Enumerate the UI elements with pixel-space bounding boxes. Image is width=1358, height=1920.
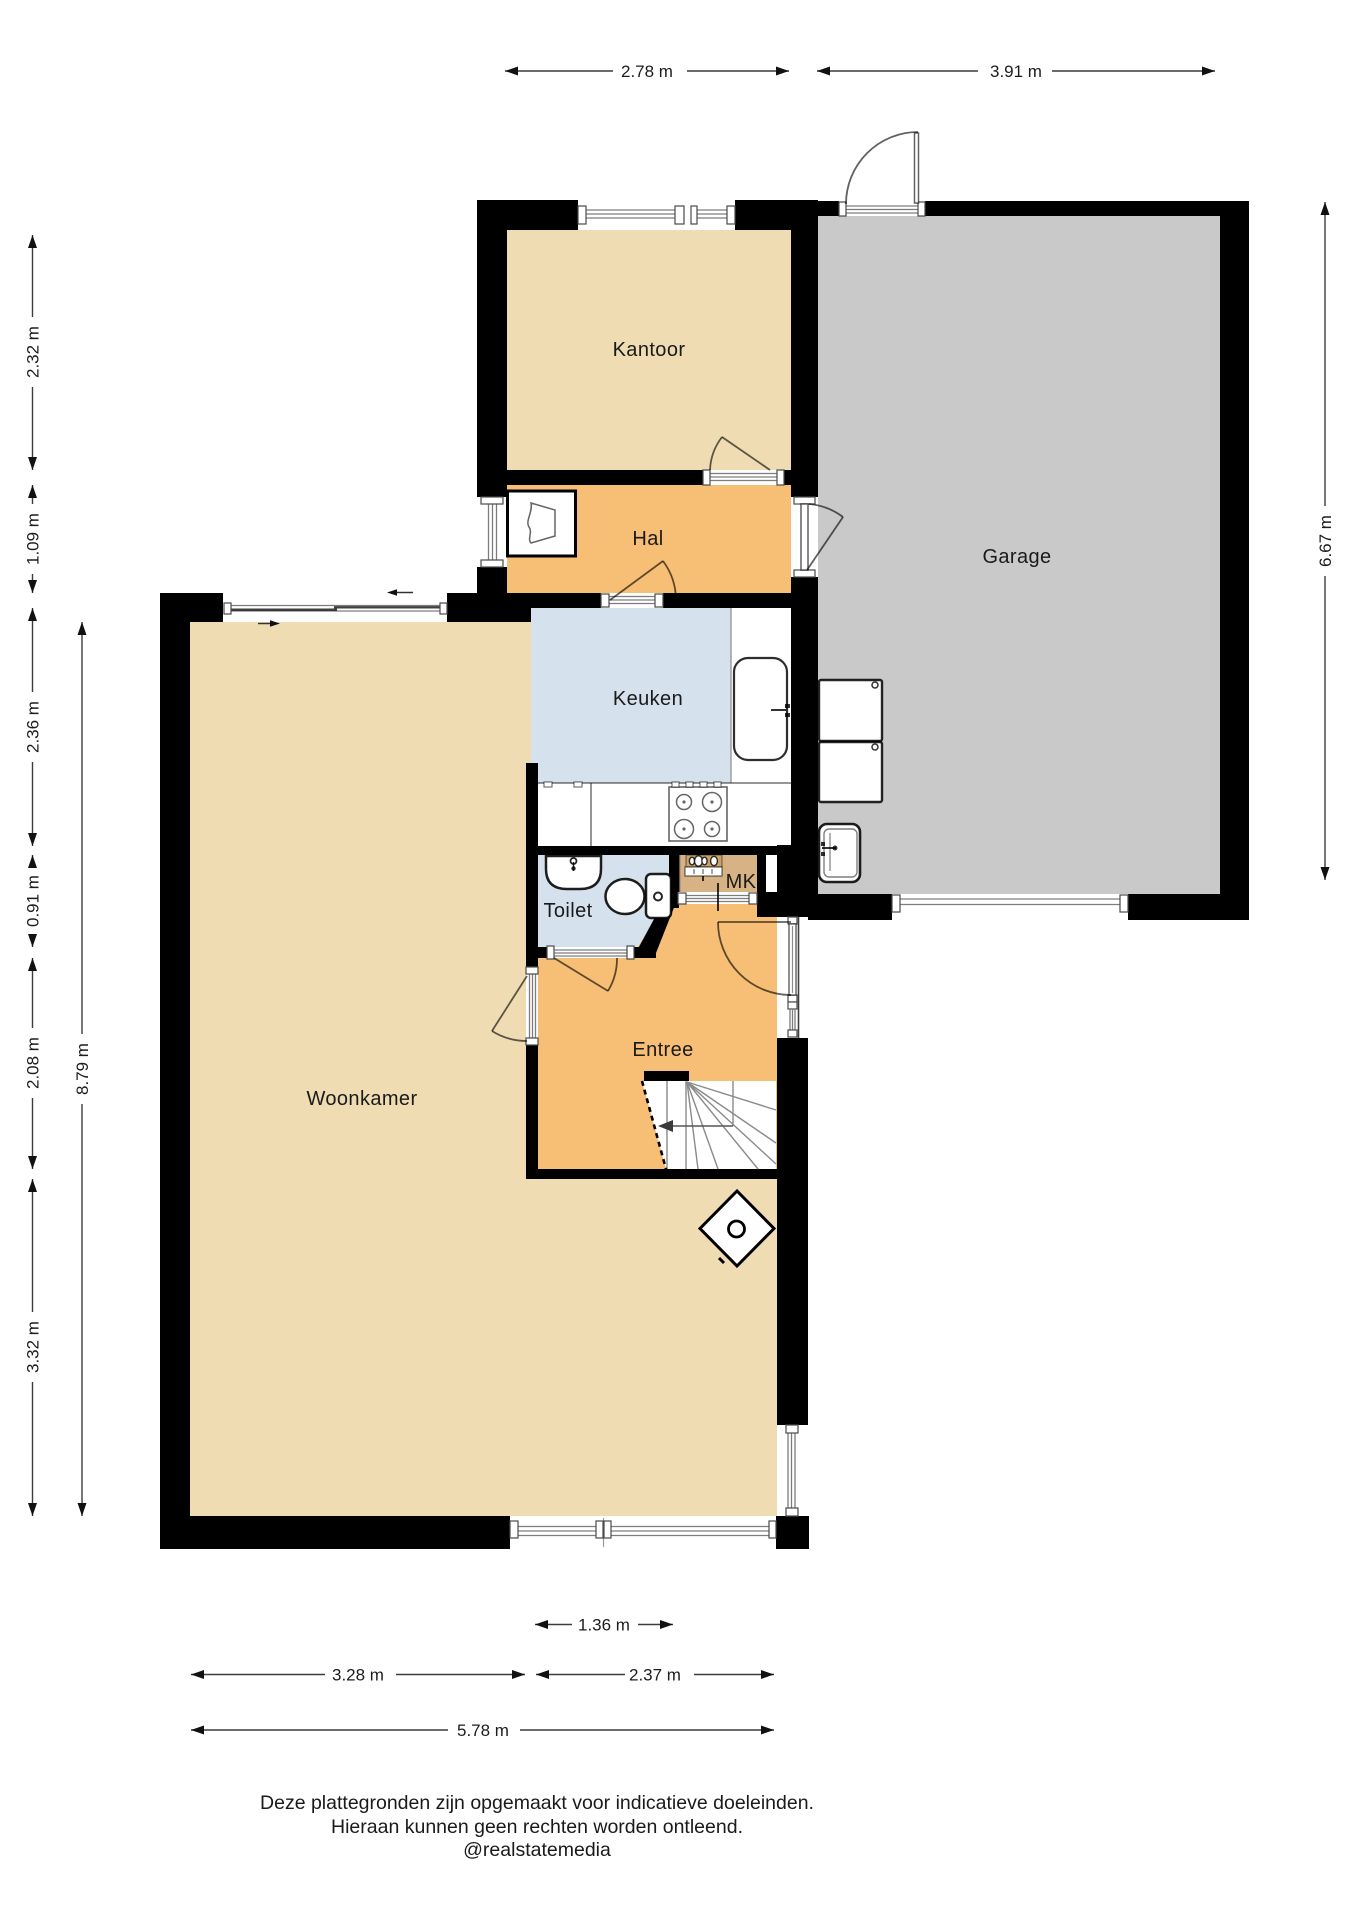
svg-text:Garage: Garage: [982, 546, 1051, 568]
svg-text:Kantoor: Kantoor: [613, 339, 686, 361]
svg-text:Hieraan kunnen geen rechten wo: Hieraan kunnen geen rechten worden ontle…: [331, 1816, 743, 1838]
svg-text:3.32 m: 3.32 m: [24, 1321, 43, 1373]
svg-text:Deze plattegronden zijn opgema: Deze plattegronden zijn opgemaakt voor i…: [260, 1792, 814, 1814]
svg-text:Hal: Hal: [632, 528, 663, 550]
svg-text:Woonkamer: Woonkamer: [306, 1088, 417, 1110]
svg-text:5.78 m: 5.78 m: [457, 1721, 509, 1740]
svg-text:@realstatemedia: @realstatemedia: [463, 1839, 611, 1861]
svg-text:1.09 m: 1.09 m: [24, 513, 43, 565]
svg-text:2.36 m: 2.36 m: [24, 701, 43, 753]
svg-text:2.08 m: 2.08 m: [24, 1037, 43, 1089]
svg-text:Toilet: Toilet: [543, 900, 592, 922]
svg-text:Keuken: Keuken: [613, 688, 683, 710]
svg-text:3.91 m: 3.91 m: [990, 62, 1042, 81]
svg-text:MK: MK: [726, 871, 757, 893]
svg-text:2.78 m: 2.78 m: [621, 62, 673, 81]
svg-text:1.36 m: 1.36 m: [578, 1616, 630, 1635]
svg-text:3.28 m: 3.28 m: [332, 1666, 384, 1685]
svg-text:6.67 m: 6.67 m: [1316, 515, 1335, 567]
svg-text:2.37 m: 2.37 m: [629, 1666, 681, 1685]
svg-text:Entree: Entree: [632, 1039, 693, 1061]
svg-text:2.32 m: 2.32 m: [24, 326, 43, 378]
svg-text:0.91 m: 0.91 m: [24, 875, 43, 927]
svg-text:8.79 m: 8.79 m: [73, 1043, 92, 1095]
